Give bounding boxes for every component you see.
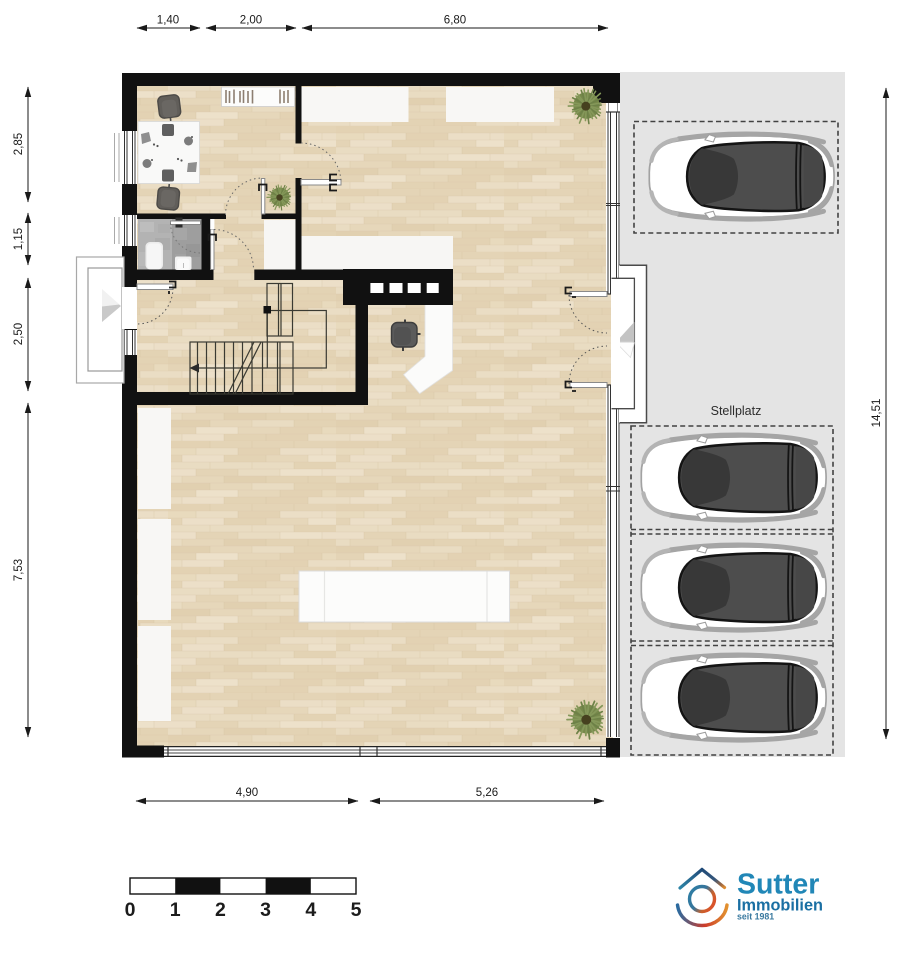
svg-text:2: 2	[215, 899, 226, 921]
svg-text:4,90: 4,90	[236, 787, 258, 799]
svg-text:1,40: 1,40	[157, 15, 179, 27]
svg-text:2,00: 2,00	[240, 15, 262, 27]
svg-text:0: 0	[125, 899, 136, 921]
svg-text:2,85: 2,85	[13, 133, 25, 155]
svg-text:1,15: 1,15	[13, 228, 25, 250]
svg-text:6,80: 6,80	[444, 15, 466, 27]
svg-text:14,51: 14,51	[871, 399, 883, 428]
svg-text:Stellplatz: Stellplatz	[711, 404, 762, 418]
svg-text:1: 1	[170, 899, 181, 921]
svg-text:2,50: 2,50	[13, 323, 25, 345]
svg-text:5: 5	[351, 899, 362, 921]
svg-text:seit 1981: seit 1981	[737, 912, 774, 922]
svg-text:4: 4	[305, 899, 316, 921]
svg-text:5,26: 5,26	[476, 787, 498, 799]
svg-text:3: 3	[260, 899, 271, 921]
svg-text:7,53: 7,53	[13, 559, 25, 581]
